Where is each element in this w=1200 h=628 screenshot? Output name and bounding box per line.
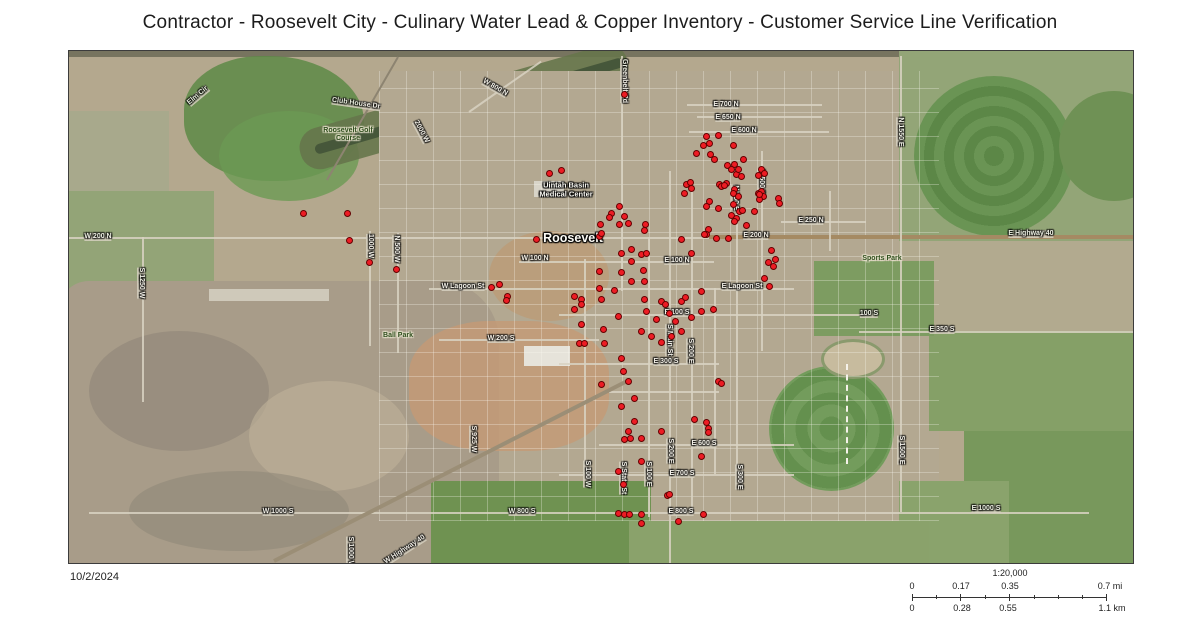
map-label: W 200 S [488, 335, 515, 343]
service-line-point [666, 310, 673, 317]
service-line-point [615, 313, 622, 320]
map-label: W 800 S [509, 508, 536, 516]
service-line-point [598, 381, 605, 388]
service-line-point [715, 132, 722, 139]
service-line-point [731, 218, 738, 225]
map-label: Uintah Basin Medical Center [539, 181, 592, 198]
service-line-point [688, 185, 695, 192]
service-line-point [658, 428, 665, 435]
map-label: S 1500 E [897, 436, 905, 465]
service-line-point [725, 235, 732, 242]
map-label: E 100 N [664, 257, 689, 265]
map-label: N 1550 E [896, 117, 904, 146]
map-label: S Main St [665, 324, 673, 356]
service-line-point [705, 429, 712, 436]
map-label: 1000 W [366, 234, 374, 258]
service-line-point [666, 491, 673, 498]
service-line-point [688, 250, 695, 257]
map-label: E Lagoon St [722, 283, 763, 291]
service-line-point [772, 256, 779, 263]
service-line-point [620, 368, 627, 375]
service-line-point [597, 221, 604, 228]
service-line-point [571, 306, 578, 313]
map-overlay: Elm CirClub House Dr2000 WW 800 NGreenbe… [69, 51, 1133, 563]
map-label: S State St [619, 462, 627, 495]
service-line-point [743, 222, 750, 229]
map-label: Roosevelt [543, 231, 603, 245]
map-label: S 925 W [469, 426, 477, 453]
service-line-point [770, 263, 777, 270]
service-line-point [710, 306, 717, 313]
map-label: N 500 W [392, 235, 400, 262]
service-line-point [631, 418, 638, 425]
service-line-point [682, 294, 689, 301]
scale-mi-07: 0.7 mi [1098, 581, 1123, 591]
service-line-point [616, 203, 623, 210]
map-label: E 600 N [731, 127, 756, 135]
scale-mi-017: 0.17 [952, 581, 970, 591]
service-line-point [571, 293, 578, 300]
service-line-point [496, 281, 503, 288]
service-line-point [578, 321, 585, 328]
map-label: 100 S [860, 310, 878, 318]
map-label: E 650 N [715, 114, 740, 122]
report-page: Contractor - Roosevelt City - Culinary W… [0, 0, 1200, 628]
service-line-point [366, 259, 373, 266]
service-line-point [626, 511, 633, 518]
service-line-point [641, 278, 648, 285]
service-line-point [675, 518, 682, 525]
service-line-point [344, 210, 351, 217]
map-label: Club House Dr [331, 97, 380, 112]
service-line-point [691, 416, 698, 423]
service-line-point [756, 191, 763, 198]
service-line-point [558, 167, 565, 174]
service-line-point [641, 227, 648, 234]
scale-mi-035: 0.35 [1001, 581, 1019, 591]
service-line-point [503, 297, 510, 304]
service-line-point [721, 182, 728, 189]
service-line-point [730, 201, 737, 208]
service-line-point [698, 453, 705, 460]
service-line-point [715, 205, 722, 212]
service-line-point [698, 308, 705, 315]
map-label: 2000 W [412, 119, 430, 144]
scale-mi-0: 0 [909, 581, 914, 591]
map-label: E 200 N [743, 232, 768, 240]
service-line-point [628, 258, 635, 265]
map-label: Ball Park [383, 332, 413, 340]
service-line-point [625, 428, 632, 435]
service-line-point [688, 314, 695, 321]
scale-miles-labels: 0 0.17 0.35 0.7 mi [905, 581, 1145, 591]
service-line-point [625, 220, 632, 227]
service-line-point [641, 296, 648, 303]
service-line-point [658, 339, 665, 346]
service-line-point [598, 230, 605, 237]
service-line-point [672, 318, 679, 325]
service-line-point [618, 269, 625, 276]
service-line-point [662, 301, 669, 308]
map-label: E 250 N [798, 217, 823, 225]
service-line-point [703, 203, 710, 210]
service-line-point [578, 301, 585, 308]
service-line-point [346, 237, 353, 244]
map-label: S 100 E [644, 462, 652, 487]
service-line-point [596, 268, 603, 275]
map-label: W 1000 S [263, 508, 294, 516]
service-line-point [735, 193, 742, 200]
service-line-point [643, 250, 650, 257]
map-label: S 100 W [583, 461, 591, 488]
service-line-point [766, 283, 773, 290]
map-label: E 700 N [713, 101, 738, 109]
service-line-point [638, 435, 645, 442]
map-label: E Highway 40 [1008, 230, 1053, 238]
service-line-point [735, 166, 742, 173]
service-line-point [678, 328, 685, 335]
service-line-point [761, 275, 768, 282]
map-label: S 300 E [735, 465, 743, 490]
map-label: Elm Cir [186, 85, 210, 107]
service-line-point [393, 266, 400, 273]
map-label: S 1250 W [137, 268, 145, 299]
service-line-point [618, 355, 625, 362]
service-line-point [627, 435, 634, 442]
service-line-point [776, 200, 783, 207]
service-line-point [488, 284, 495, 291]
service-line-point [533, 236, 540, 243]
service-line-point [643, 308, 650, 315]
scale-bar-line [912, 597, 1107, 598]
service-line-point [601, 340, 608, 347]
service-line-point [300, 210, 307, 217]
scale-bar: 1:20,000 0 0.17 0.35 0.7 mi 0 0.28 0.55 … [905, 568, 1145, 620]
scale-ratio: 1:20,000 [905, 568, 1115, 578]
service-line-point [678, 236, 685, 243]
map-date: 10/2/2024 [70, 571, 119, 583]
service-line-point [596, 285, 603, 292]
map-label: W 800 N [481, 78, 509, 99]
map-label: W 100 N [521, 255, 548, 263]
service-line-point [618, 403, 625, 410]
service-line-point [768, 247, 775, 254]
service-line-point [703, 133, 710, 140]
map-label: E 800 S [669, 508, 694, 516]
map-label: Sports Park [862, 255, 901, 263]
service-line-point [546, 170, 553, 177]
service-line-point [606, 214, 613, 221]
map-label: S 200 E [686, 339, 694, 364]
service-line-point [668, 333, 675, 340]
map-label: E 350 S [930, 326, 955, 334]
service-line-point [620, 481, 627, 488]
service-line-point [638, 328, 645, 335]
service-line-point [751, 208, 758, 215]
service-line-point [640, 267, 647, 274]
service-line-point [730, 142, 737, 149]
service-line-point [600, 326, 607, 333]
service-line-point [653, 316, 660, 323]
map-label: S 200 E [666, 439, 674, 464]
service-line-point [638, 511, 645, 518]
service-line-point [761, 170, 768, 177]
service-line-point [621, 213, 628, 220]
service-line-point [616, 221, 623, 228]
service-line-point [711, 156, 718, 163]
service-line-point [611, 287, 618, 294]
service-line-point [618, 250, 625, 257]
map-label: E 300 S [654, 358, 679, 366]
service-line-point [740, 156, 747, 163]
scale-km-028: 0.28 [953, 603, 971, 613]
map-label: E 600 S [692, 440, 717, 448]
service-line-point [638, 458, 645, 465]
service-line-point [739, 207, 746, 214]
map-label: S 1000 W [346, 537, 354, 564]
service-line-point [638, 520, 645, 527]
service-line-point [713, 235, 720, 242]
scale-km-labels: 0 0.28 0.55 1.1 km [905, 603, 1145, 613]
scale-km-0: 0 [909, 603, 914, 613]
service-line-point [700, 511, 707, 518]
service-line-point [706, 140, 713, 147]
service-line-point [598, 296, 605, 303]
scale-km-055: 0.55 [999, 603, 1017, 613]
service-line-point [625, 378, 632, 385]
service-line-point [628, 246, 635, 253]
page-title: Contractor - Roosevelt City - Culinary W… [0, 12, 1200, 34]
service-line-point [693, 150, 700, 157]
map-label: W 200 N [84, 233, 111, 241]
service-line-point [621, 91, 628, 98]
scale-km-11: 1.1 km [1098, 603, 1125, 613]
service-line-point [631, 395, 638, 402]
service-line-point [615, 468, 622, 475]
service-line-point [718, 380, 725, 387]
service-line-point [698, 288, 705, 295]
map-label: E 1000 S [972, 505, 1001, 513]
service-line-point [628, 278, 635, 285]
map-label: Roosevelt Golf Course [323, 127, 372, 143]
satellite-map: Elm CirClub House Dr2000 WW 800 NGreenbe… [68, 50, 1134, 564]
map-label: W Highway 40 [383, 534, 427, 564]
map-label: E 700 S [670, 470, 695, 478]
service-line-point [738, 173, 745, 180]
service-line-point [648, 333, 655, 340]
service-line-point [701, 231, 708, 238]
service-line-point [681, 190, 688, 197]
service-line-point [581, 340, 588, 347]
map-label: W Lagoon St [442, 283, 485, 291]
